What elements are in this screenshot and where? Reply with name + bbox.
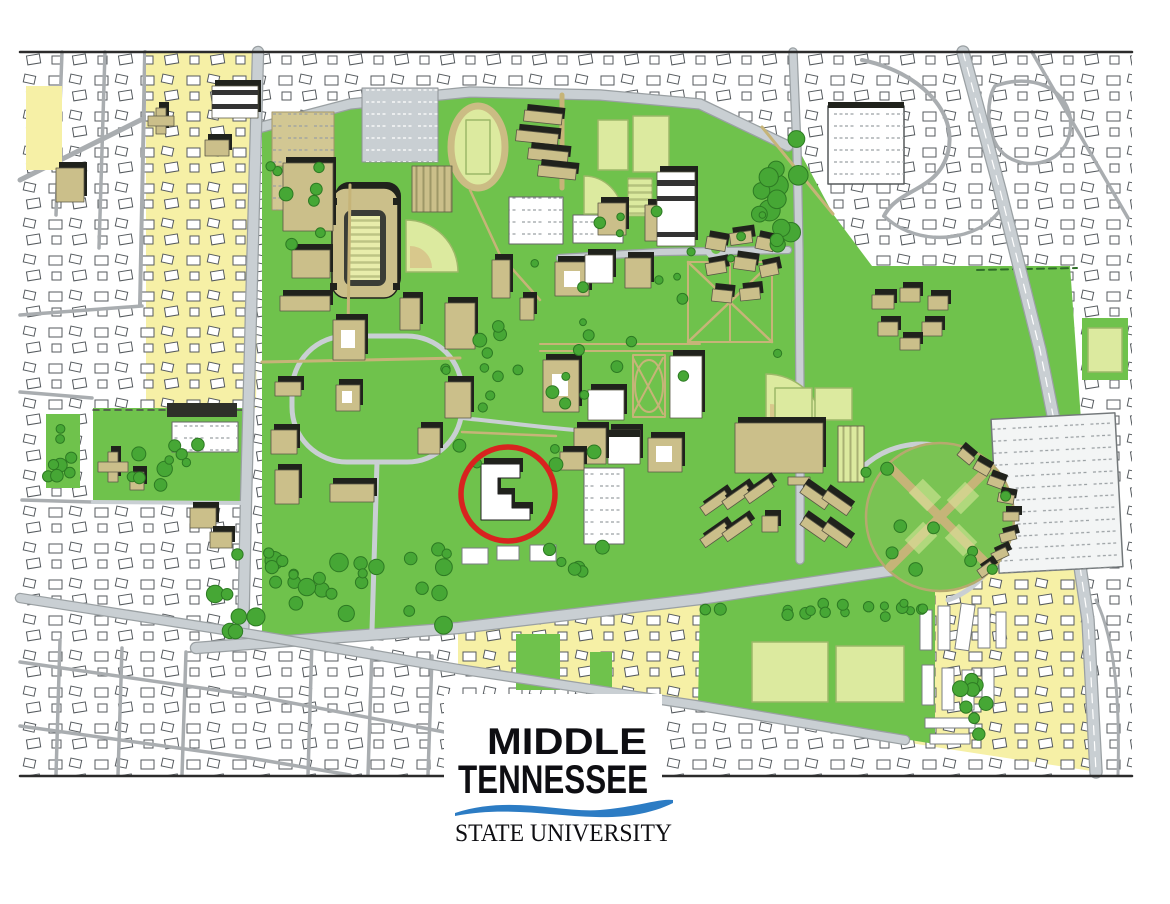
map-features: [20, 52, 1132, 776]
tree-cluster: [338, 605, 354, 621]
tree-cluster: [768, 190, 787, 209]
tree-cluster: [165, 456, 174, 465]
tree-cluster: [894, 520, 907, 533]
mtsu-logo: MIDDLE TENNESSEE STATE UNIVERSITY: [444, 694, 673, 866]
roof-band: [608, 430, 640, 437]
campus-building: [492, 260, 510, 298]
student-union: [735, 423, 823, 473]
tree-row: [404, 552, 417, 565]
residence-hall: [872, 295, 894, 309]
campus-building: [400, 298, 420, 330]
tree-cluster: [587, 445, 601, 459]
apartment-building: [996, 612, 1006, 648]
school-building: [56, 168, 84, 202]
apartment-building: [922, 665, 934, 705]
athletic-field: [775, 388, 812, 420]
tree-row: [358, 569, 367, 578]
tree-cluster: [482, 348, 492, 358]
tree-cluster: [432, 585, 447, 600]
athletic-field-south: [836, 646, 904, 702]
tree-cluster: [727, 255, 734, 262]
tree-row: [782, 609, 793, 620]
tree-cluster: [310, 183, 322, 195]
tree-cluster: [279, 187, 293, 201]
campus-building: [210, 532, 232, 548]
commercial-zone-northwest: [26, 86, 62, 170]
apartment-building: [930, 734, 970, 744]
tree-row: [543, 543, 555, 555]
athletic-field: [815, 388, 852, 420]
tree-cluster: [580, 319, 587, 326]
tree-row: [442, 549, 451, 558]
tree-cluster: [313, 572, 325, 584]
campus-building: [418, 428, 440, 454]
tree-cluster: [928, 522, 940, 534]
tree-cluster: [687, 248, 695, 256]
logo-line-tennessee: TENNESSEE: [458, 758, 648, 802]
athletic-field: [1088, 328, 1122, 372]
tree-cluster: [442, 366, 450, 374]
tree-cluster: [182, 458, 190, 466]
tree-cluster: [573, 345, 584, 356]
tree-cluster: [909, 563, 923, 577]
tree-cluster: [969, 713, 980, 724]
tree-cluster: [788, 131, 805, 148]
walker-library: [670, 356, 702, 418]
tree-cluster: [560, 398, 571, 409]
tree-row: [900, 599, 908, 607]
tree-cluster: [473, 333, 487, 347]
tree-cluster: [881, 462, 894, 475]
tree-cluster: [266, 162, 275, 171]
campus-building: [585, 255, 613, 283]
tree-cluster: [674, 273, 681, 280]
tree-cluster: [51, 469, 64, 482]
campus-building: [625, 258, 651, 288]
roof-band: [657, 180, 695, 186]
tree-cluster: [973, 728, 985, 740]
apartment-building: [978, 608, 990, 648]
campus-building: [497, 546, 519, 560]
roof-band: [657, 196, 695, 201]
tree-cluster: [221, 589, 233, 601]
tree-cluster: [435, 616, 453, 634]
residence-hall: [900, 288, 920, 302]
tree-cluster: [960, 701, 972, 713]
tree-cluster: [404, 606, 415, 617]
tree-cluster: [316, 228, 326, 238]
tree-cluster: [232, 549, 243, 560]
tree-cluster: [759, 168, 778, 187]
tree-cluster: [66, 452, 77, 463]
campus-building: [271, 430, 297, 454]
tree-cluster: [228, 624, 242, 638]
tree-cluster: [192, 438, 205, 451]
tree-cluster: [330, 553, 349, 572]
tree-cluster: [965, 555, 977, 567]
courtyard: [656, 446, 672, 462]
tree-row: [354, 557, 367, 570]
intramural-courts: [598, 120, 628, 170]
campus-map: MIDDLE TENNESSEE STATE UNIVERSITY: [0, 0, 1170, 904]
apartment-building: [920, 610, 932, 650]
parking-rows: [362, 88, 438, 162]
tree-cluster: [480, 364, 489, 373]
stadium-corner: [393, 198, 400, 205]
residence-hall: [739, 287, 760, 301]
tree-cluster: [594, 217, 606, 229]
tree-cluster: [486, 391, 495, 400]
intramural-field: [633, 116, 669, 172]
campus-building: [462, 548, 488, 564]
tree-cluster: [513, 365, 523, 375]
tree-cluster: [789, 166, 809, 186]
street: [22, 500, 92, 502]
tree-row: [557, 557, 566, 566]
tree-cluster: [655, 276, 663, 284]
road-west-campus: [93, 502, 248, 503]
tree-row: [568, 563, 581, 576]
logo-line-state-university: STATE UNIVERSITY: [455, 820, 672, 847]
tree-cluster: [416, 582, 428, 594]
tree-cluster: [132, 447, 146, 461]
campus-building: [560, 452, 584, 470]
tree-row: [700, 604, 711, 615]
campus-building: [330, 484, 374, 502]
roof-band: [212, 90, 258, 95]
stadium-corner: [330, 283, 337, 290]
walkway: [348, 185, 350, 334]
parking-rows: [584, 468, 624, 544]
tree-cluster: [611, 361, 623, 373]
tree-cluster: [987, 564, 997, 574]
tree-cluster: [617, 213, 625, 221]
tree-cluster: [56, 425, 65, 434]
tree-cluster: [551, 445, 560, 454]
tree-cluster: [231, 609, 246, 624]
campus-building: [445, 303, 475, 349]
tree-cluster: [531, 260, 539, 268]
apartment-building: [938, 606, 950, 650]
tree-cluster: [154, 479, 167, 492]
tree-cluster: [770, 233, 783, 246]
tree-cluster: [861, 467, 871, 477]
courtyard: [564, 271, 580, 287]
campus-building: [588, 390, 624, 420]
campus-building: [205, 140, 229, 156]
tree-row: [880, 602, 888, 610]
campus-building: [520, 298, 534, 320]
stadium-field-stripes: [350, 216, 380, 280]
tree-row: [863, 602, 873, 612]
tree-row: [714, 603, 726, 615]
roof-band: [657, 232, 695, 237]
tree-cluster: [309, 195, 320, 206]
stadium-corner: [393, 283, 400, 290]
courtyard: [341, 330, 355, 348]
tree-cluster: [286, 238, 298, 250]
campus-building: [98, 462, 128, 472]
tree-cluster: [493, 371, 504, 382]
tree-cluster: [298, 578, 315, 595]
tree-cluster: [737, 232, 746, 241]
tree-cluster: [678, 371, 688, 381]
residence-hall: [928, 296, 948, 310]
tree-cluster: [677, 293, 688, 304]
dark-roof-building: [167, 403, 237, 417]
residence-hall: [711, 289, 732, 303]
tree-cluster: [48, 460, 58, 470]
tree-cluster: [478, 403, 487, 412]
tree-cluster: [616, 230, 623, 237]
tree-row: [820, 607, 830, 617]
tree-cluster: [56, 435, 65, 444]
campus-building: [275, 470, 299, 504]
tree-cluster: [759, 212, 766, 219]
tree-row: [837, 599, 848, 610]
tree-cluster: [326, 588, 337, 599]
tree-cluster: [247, 608, 265, 626]
tree-cluster: [953, 681, 969, 697]
tree-cluster: [578, 282, 589, 293]
apartment-building: [925, 718, 975, 728]
campus-building: [190, 508, 216, 528]
tree-cluster: [546, 386, 559, 399]
parking-edge: [828, 102, 904, 108]
campus-building: [275, 382, 301, 396]
tree-cluster: [774, 349, 782, 357]
tree-cluster: [562, 372, 570, 380]
campus-building: [292, 250, 330, 278]
tree-row: [289, 570, 298, 579]
tree-cluster: [270, 576, 282, 588]
parking-rows: [172, 422, 238, 452]
tree-cluster: [651, 206, 662, 217]
tennis-court-lines: [412, 166, 452, 212]
residence-hall: [900, 338, 920, 350]
residence-hall: [922, 322, 942, 336]
track: [451, 106, 505, 188]
tree-row: [277, 555, 288, 566]
campus-building: [148, 116, 174, 126]
tree-cluster: [583, 330, 594, 341]
tree-cluster: [314, 162, 324, 172]
campus-building: [280, 296, 330, 311]
tennis-court-lines: [838, 426, 864, 482]
tree-row: [596, 540, 610, 554]
courtyard: [342, 391, 352, 403]
logo-line-middle: MIDDLE: [487, 721, 647, 762]
tree-cluster: [436, 559, 453, 576]
tree-cluster: [264, 548, 274, 558]
residence-hall: [733, 257, 756, 272]
roof-band: [212, 104, 258, 109]
campus-building: [445, 382, 471, 418]
tree-cluster: [886, 547, 898, 559]
tree-cluster: [979, 697, 993, 711]
athletic-field-south: [752, 642, 828, 702]
tree-row: [806, 606, 816, 616]
tree-cluster: [493, 321, 505, 333]
tree-cluster: [289, 597, 303, 611]
tree-row: [918, 604, 927, 613]
scarlett-commons: [1003, 512, 1019, 521]
residence-hall: [878, 322, 898, 336]
tree-cluster: [134, 472, 146, 484]
campus-building: [762, 516, 778, 532]
parking-rows: [828, 106, 904, 184]
tree-row: [880, 612, 890, 622]
tree-cluster: [580, 391, 589, 400]
tree-cluster: [626, 336, 636, 346]
tree-cluster: [1001, 491, 1011, 501]
tree-cluster: [369, 559, 384, 574]
tree-cluster: [453, 439, 466, 452]
parking-rows: [509, 197, 563, 244]
